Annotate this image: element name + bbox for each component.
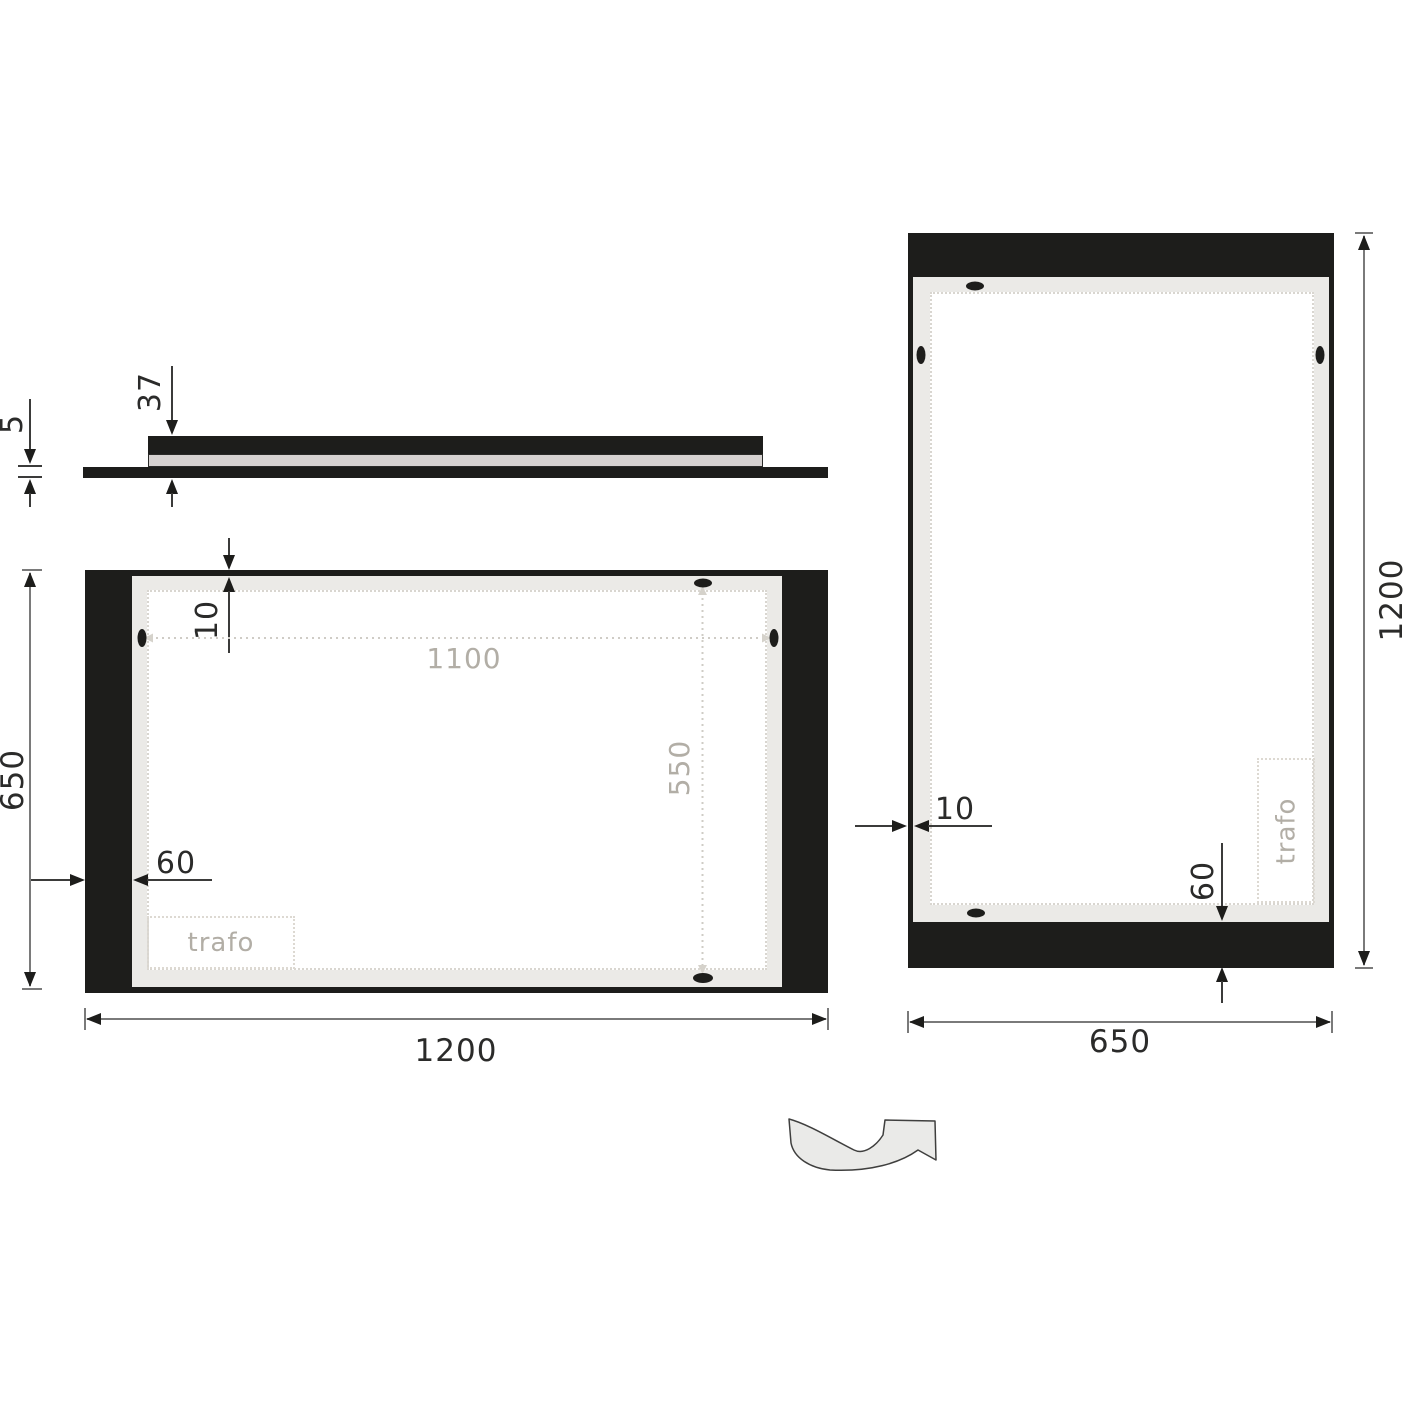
dim-label-portrait-width-650: 650 bbox=[1065, 1022, 1175, 1062]
rotate-arrow-icon bbox=[789, 1119, 936, 1170]
portrait-trafo-label: trafo bbox=[1271, 797, 1301, 864]
dim-label-portrait-height-1200: 1200 bbox=[1372, 545, 1406, 655]
front-view-trafo-box: trafo bbox=[147, 916, 295, 969]
dim-label-led-height-550: 550 bbox=[661, 723, 697, 813]
side-view-housing bbox=[148, 436, 763, 455]
dim-label-glass-5: 5 bbox=[0, 389, 30, 459]
dim-label-front-height-650: 650 bbox=[0, 725, 33, 835]
dim-height-1200-portrait-lines bbox=[1355, 233, 1373, 968]
mirror-dimension-drawing: trafo trafo bbox=[0, 0, 1406, 1406]
dim-label-portrait-side-inset-10: 10 bbox=[920, 791, 990, 827]
front-trafo-label: trafo bbox=[188, 928, 255, 958]
side-view-mirror-plate bbox=[83, 467, 828, 478]
dim-label-front-top-inset-10: 10 bbox=[189, 585, 225, 655]
side-view-glass-strip bbox=[148, 454, 763, 467]
dim-width-1200-front-lines bbox=[85, 1008, 828, 1030]
dim-label-front-side-inset-60: 60 bbox=[141, 845, 211, 881]
dim-label-led-width-1100: 1100 bbox=[409, 641, 519, 675]
dim-label-front-width-1200: 1200 bbox=[401, 1031, 511, 1071]
dim-label-depth-37: 37 bbox=[132, 357, 168, 427]
dim-label-portrait-bottom-inset-60: 60 bbox=[1185, 846, 1221, 916]
portrait-view-trafo-box: trafo bbox=[1257, 758, 1315, 903]
